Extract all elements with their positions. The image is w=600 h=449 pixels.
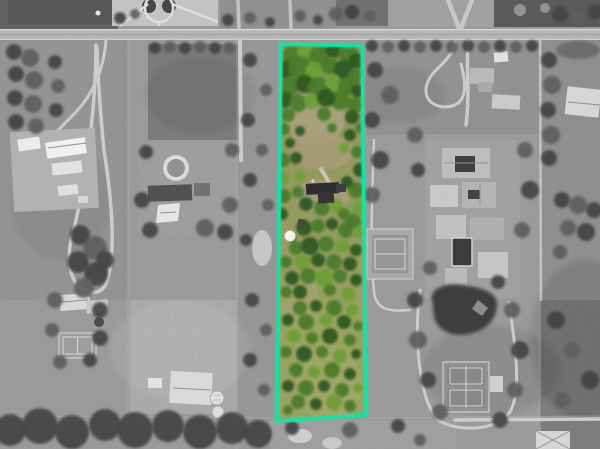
photo-grain: [0, 0, 600, 449]
aerial-photo: [0, 0, 600, 449]
aerial-image-stage: [0, 0, 600, 449]
